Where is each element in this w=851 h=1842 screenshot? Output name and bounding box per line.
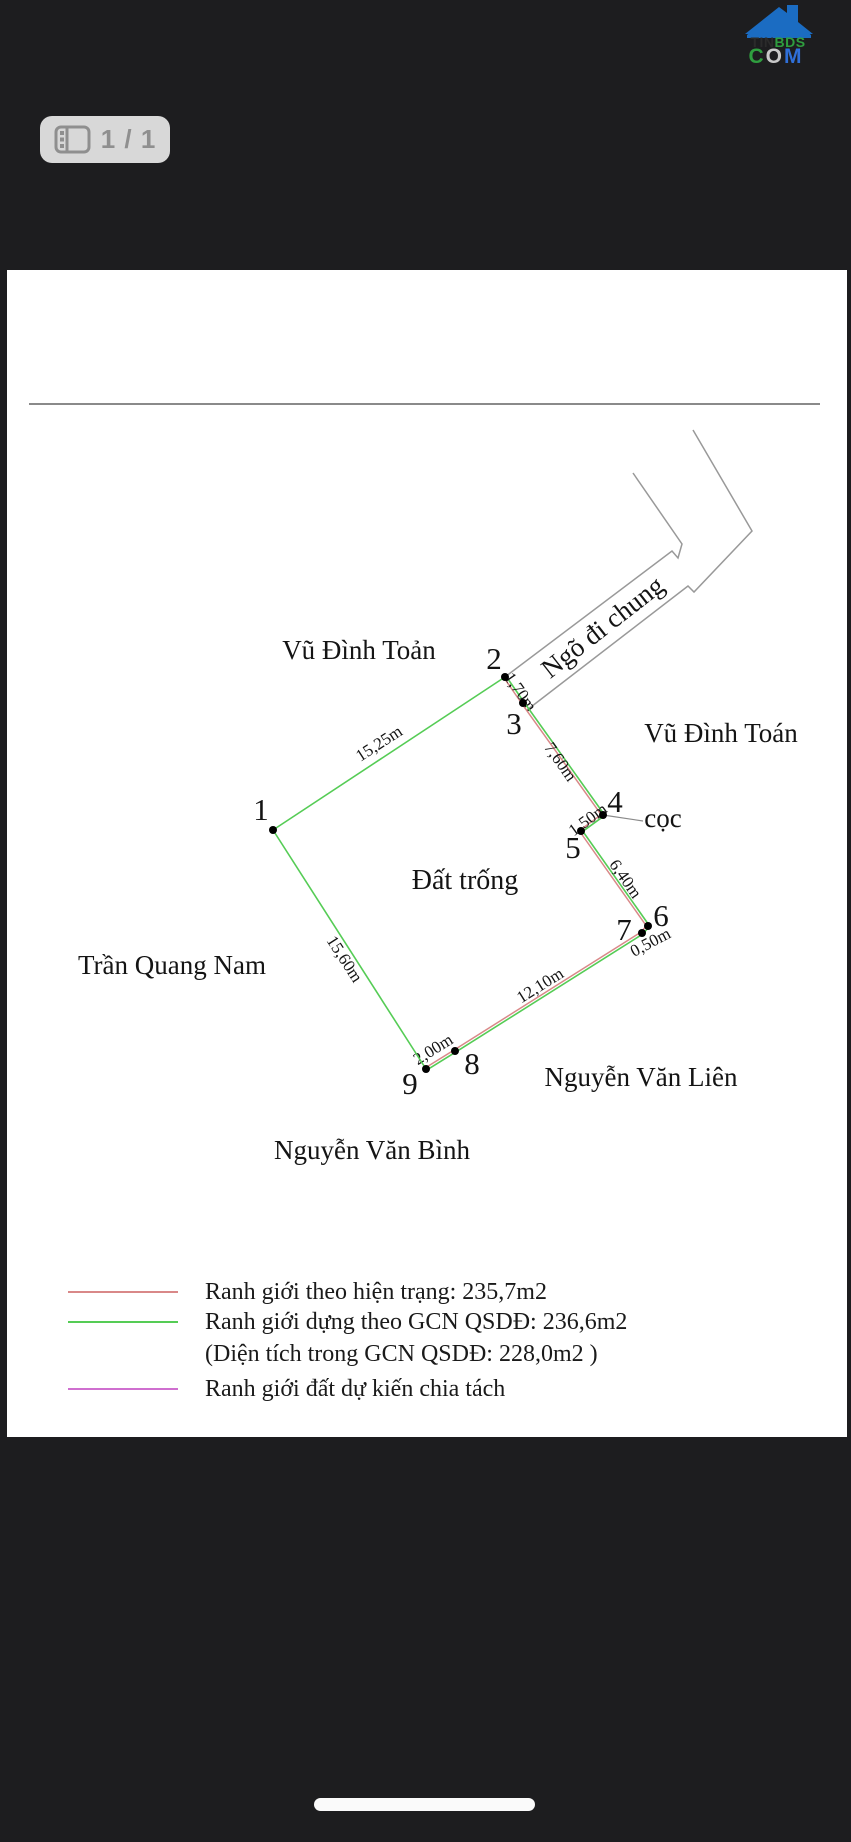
home-indicator[interactable] (314, 1798, 535, 1811)
edge-length-label: 6,40m (605, 856, 645, 902)
neighbor-label: Vũ Đình Toán (644, 718, 798, 748)
survey-point-4 (599, 811, 607, 819)
parcel-area-label: Đất trống (412, 865, 519, 896)
edge-length-label: 15,25m (352, 721, 406, 765)
point-number-9: 9 (402, 1066, 418, 1101)
survey-point-9 (422, 1065, 430, 1073)
point-number-4: 4 (607, 784, 623, 819)
legend-row-split: Ranh giới đất dự kiến chia tách (68, 1375, 505, 1403)
document-page: 15,25m1,70m7,60m1,50m6,40m0,50m12,10m2,0… (7, 270, 847, 1437)
survey-point-1 (269, 826, 277, 834)
edge-length-label: 7,60m (540, 739, 580, 785)
road-name-label: Ngõ đi chung (535, 570, 669, 684)
page-counter-label: 1 / 1 (101, 124, 157, 155)
tinbds-logo: TINBDS COM (733, 2, 817, 66)
point-number-3: 3 (506, 706, 522, 741)
survey-point-7 (638, 929, 646, 937)
survey-point-2 (501, 673, 509, 681)
legend-line-split (68, 1388, 178, 1390)
neighbor-label: cọc (644, 803, 681, 833)
survey-point-8 (451, 1047, 459, 1055)
survey-diagram: 15,25m1,70m7,60m1,50m6,40m0,50m12,10m2,0… (7, 270, 847, 1437)
boundary-gcn-line (273, 677, 505, 830)
page-counter-pill[interactable]: 1 / 1 (40, 116, 170, 163)
point-number-8: 8 (464, 1046, 480, 1081)
boundary-gcn-line (456, 934, 643, 1052)
legend-label-split: Ranh giới đất dự kiến chia tách (205, 1376, 505, 1403)
legend-label-gcn-area: (Diện tích trong GCN QSDĐ: 228,0m2 ) (205, 1341, 598, 1368)
point-number-2: 2 (486, 641, 502, 676)
legend-row-current: Ranh giới theo hiện trạng: 235,7m2 (68, 1278, 547, 1306)
legend-line-gcn (68, 1321, 178, 1323)
neighbor-label: Trần Quang Nam (78, 950, 266, 980)
survey-point-6 (644, 922, 652, 930)
edge-length-label: 12,10m (513, 964, 567, 1007)
point-number-6: 6 (653, 898, 669, 933)
legend-label-gcn: Ranh giới dựng theo GCN QSDĐ: 236,6m2 (205, 1309, 627, 1336)
legend-line-current (68, 1291, 178, 1293)
point-number-1: 1 (253, 792, 269, 827)
point-number-7: 7 (616, 912, 632, 947)
neighbor-label: Vũ Đình Toản (282, 635, 436, 665)
pages-icon (54, 125, 91, 154)
logo-text-bottom: COM (748, 45, 803, 66)
neighbor-label: Nguyễn Văn Bình (274, 1135, 470, 1165)
legend-label-current: Ranh giới theo hiện trạng: 235,7m2 (205, 1279, 547, 1306)
neighbor-label: Nguyễn Văn Liên (545, 1062, 738, 1092)
point-number-5: 5 (565, 830, 581, 865)
app-background: { "logo": { "house_color": "#1b6cc2", "s… (0, 0, 851, 1842)
legend-spacer (68, 1353, 178, 1355)
legend-row-gcn: Ranh giới dựng theo GCN QSDĐ: 236,6m2 (68, 1308, 627, 1336)
legend-row-gcn-area: (Diện tích trong GCN QSDĐ: 228,0m2 ) (68, 1340, 598, 1368)
edge-length-label: 15,60m (323, 932, 367, 986)
